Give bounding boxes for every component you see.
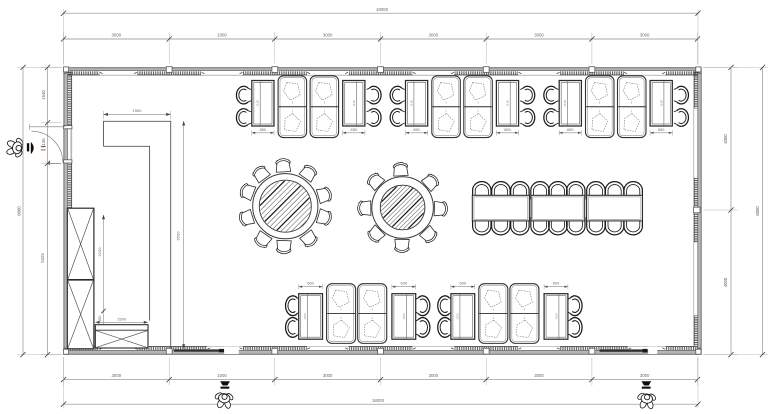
svg-text:1180: 1180 <box>303 313 307 320</box>
svg-text:18000: 18000 <box>372 398 385 403</box>
svg-text:650: 650 <box>260 127 267 132</box>
svg-text:3000: 3000 <box>534 32 544 37</box>
svg-text:1135: 1135 <box>41 138 46 148</box>
svg-text:1000: 1000 <box>217 373 227 378</box>
svg-text:1180: 1180 <box>352 100 356 107</box>
svg-text:8000: 8000 <box>755 206 760 216</box>
svg-text:3000: 3000 <box>429 32 439 37</box>
svg-text:1180: 1180 <box>402 313 406 320</box>
svg-text:4000: 4000 <box>723 134 728 144</box>
svg-text:1900: 1900 <box>133 108 143 113</box>
svg-text:600: 600 <box>401 281 408 286</box>
svg-text:650: 650 <box>567 127 574 132</box>
svg-text:1540: 1540 <box>41 90 46 100</box>
svg-text:6500: 6500 <box>176 231 181 241</box>
svg-text:3000: 3000 <box>112 32 122 37</box>
svg-text:3000: 3000 <box>640 373 650 378</box>
svg-text:650: 650 <box>658 127 665 132</box>
svg-text:1180: 1180 <box>659 100 663 107</box>
svg-text:3000: 3000 <box>112 373 122 378</box>
svg-text:3000: 3000 <box>534 373 544 378</box>
svg-text:3000: 3000 <box>640 32 650 37</box>
svg-text:1180: 1180 <box>256 100 260 107</box>
svg-text:600: 600 <box>553 281 560 286</box>
svg-text:1180: 1180 <box>563 100 567 107</box>
svg-text:650: 650 <box>504 127 511 132</box>
svg-text:3000: 3000 <box>429 373 439 378</box>
svg-text:1180: 1180 <box>554 313 558 320</box>
svg-text:600: 600 <box>460 281 467 286</box>
svg-text:3000: 3000 <box>323 32 333 37</box>
svg-text:1180: 1180 <box>455 313 459 320</box>
svg-text:650: 650 <box>351 127 358 132</box>
svg-text:4000: 4000 <box>723 277 728 287</box>
svg-text:5325: 5325 <box>40 253 45 263</box>
svg-text:1000: 1000 <box>217 32 227 37</box>
svg-text:650: 650 <box>413 127 420 132</box>
svg-text:2100: 2100 <box>97 247 102 257</box>
svg-text:8000: 8000 <box>16 206 21 216</box>
svg-text:1180: 1180 <box>409 100 413 107</box>
svg-text:18000: 18000 <box>376 7 389 12</box>
svg-text:600: 600 <box>307 281 314 286</box>
svg-text:1500: 1500 <box>117 316 127 321</box>
svg-text:3000: 3000 <box>323 373 333 378</box>
svg-text:1180: 1180 <box>506 100 510 107</box>
